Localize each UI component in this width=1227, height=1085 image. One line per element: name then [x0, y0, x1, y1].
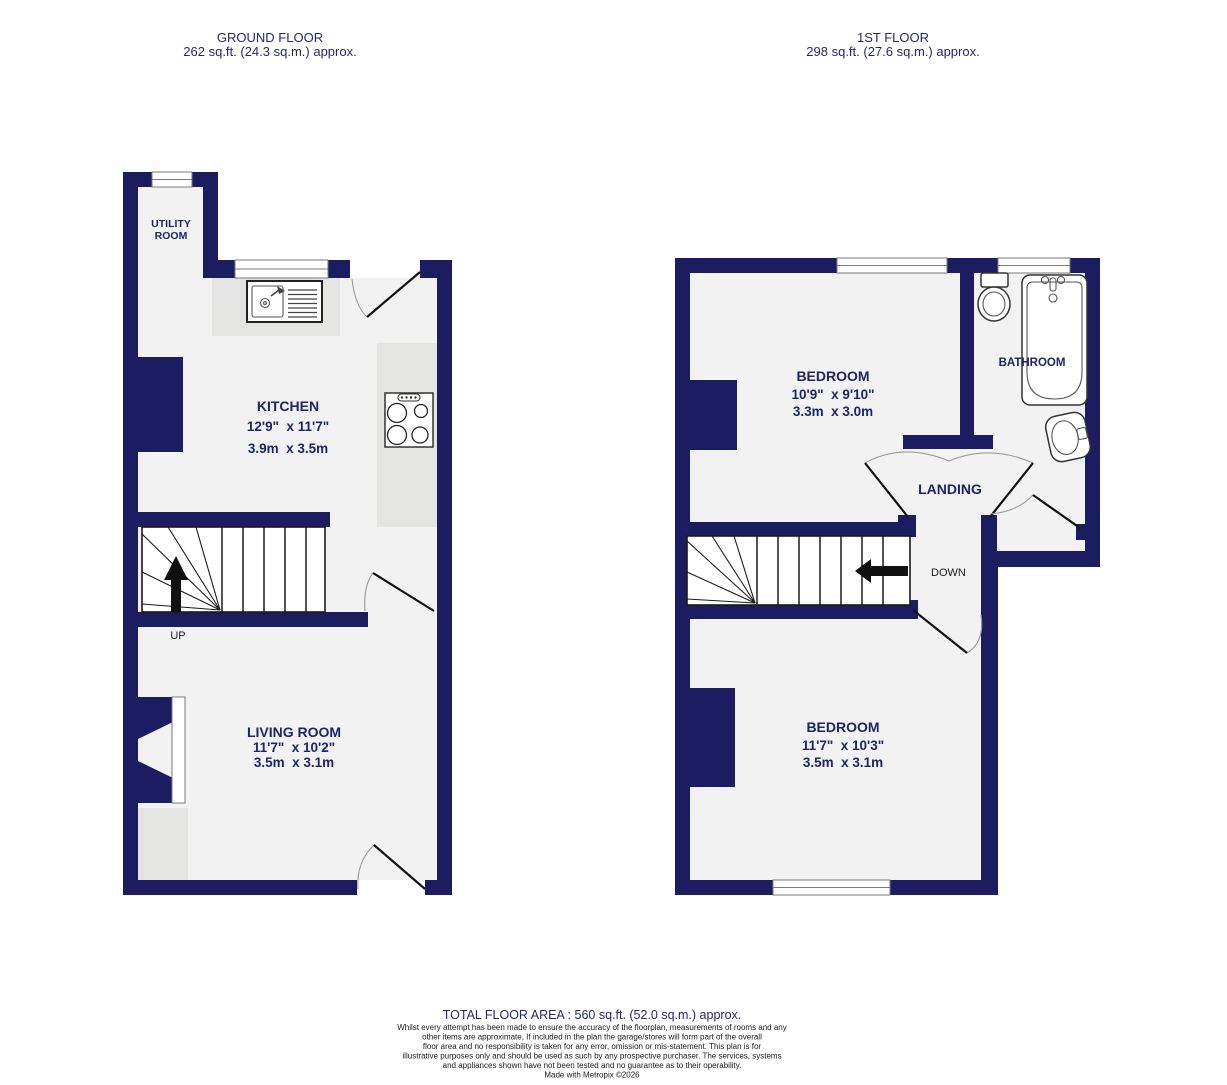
- kitchen-sink-icon: [247, 281, 322, 322]
- disclaimer-line-3: floor area and no responsibility is take…: [423, 1042, 762, 1051]
- living-room-shaded-area: [138, 808, 188, 880]
- kitchen-dims-metric: 3.9m x 3.5m: [248, 441, 328, 456]
- ground-floor-plan: UTILITY ROOM KITCHEN 12'9" x 11'7" 3.9m …: [123, 172, 452, 895]
- first-floor-title: 1ST FLOOR: [857, 30, 929, 45]
- ground-floor-title: GROUND FLOOR: [217, 30, 323, 45]
- stairs-up-label: UP: [170, 630, 185, 642]
- living-room-bay-window: [172, 697, 185, 803]
- made-with-metropix: Made with Metropix ©2026: [544, 1071, 640, 1080]
- bedroom1-dims-metric: 3.3m x 3.0m: [793, 404, 873, 419]
- floorplan-drawing: GROUND FLOOR 262 sq.ft. (24.3 sq.m.) app…: [0, 0, 1227, 1080]
- utility-room-label-line1: UTILITY: [151, 218, 191, 230]
- floorplan-page: GROUND FLOOR 262 sq.ft. (24.3 sq.m.) app…: [0, 0, 1227, 1080]
- bedroom2-chimney-breast: [690, 688, 735, 787]
- kitchen-label: KITCHEN: [257, 398, 319, 414]
- bedroom2-dims-imperial: 11'7" x 10'3": [802, 738, 884, 753]
- bathroom-label: BATHROOM: [999, 357, 1066, 369]
- living-room-dims-imperial: 11'7" x 10'2": [253, 740, 335, 755]
- bedroom1-bathroom-divider: [960, 273, 974, 438]
- bedroom2-dims-metric: 3.5m x 3.1m: [803, 755, 883, 770]
- toilet-icon: [978, 273, 1010, 321]
- bathtub-icon: [1022, 275, 1087, 405]
- living-room-label: LIVING ROOM: [247, 724, 341, 740]
- total-floor-area: TOTAL FLOOR AREA : 560 sq.ft. (52.0 sq.m…: [443, 1008, 742, 1022]
- disclaimer-line-2: other items are approximate, If included…: [422, 1033, 762, 1042]
- footer: TOTAL FLOOR AREA : 560 sq.ft. (52.0 sq.m…: [397, 1008, 787, 1080]
- ground-floor-area: 262 sq.ft. (24.3 sq.m.) approx.: [183, 44, 356, 59]
- disclaimer-line-1: Whilst every attempt has been made to en…: [397, 1023, 787, 1032]
- bedroom2-label: BEDROOM: [806, 719, 879, 735]
- disclaimer-line-4: illustrative purposes only and should be…: [402, 1052, 781, 1061]
- bedroom1-chimney-breast: [690, 380, 737, 450]
- first-floor-area: 298 sq.ft. (27.6 sq.m.) approx.: [806, 44, 979, 59]
- kitchen-chimney-breast: [138, 357, 183, 452]
- living-room-dims-metric: 3.5m x 3.1m: [254, 755, 334, 770]
- utility-room-label-line2: ROOM: [155, 230, 188, 242]
- kitchen-dims-imperial: 12'9" x 11'7": [247, 419, 329, 434]
- disclaimer-line-5: and appliances shown have not been teste…: [443, 1061, 742, 1070]
- stove-icon: [385, 393, 433, 447]
- stairs-down-label: DOWN: [931, 567, 966, 579]
- landing-label: LANDING: [918, 481, 982, 497]
- ground-floor-stairs: [142, 527, 325, 612]
- first-floor-stairs: [687, 536, 910, 605]
- bedroom1-label: BEDROOM: [796, 368, 869, 384]
- bedroom1-dims-imperial: 10'9" x 9'10": [791, 387, 874, 402]
